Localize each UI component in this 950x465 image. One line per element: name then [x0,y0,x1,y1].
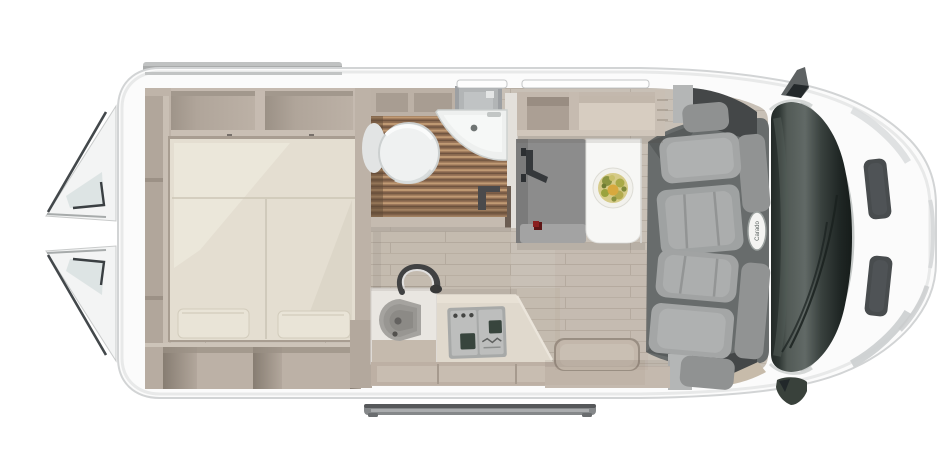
svg-text:Carado: Carado [755,221,761,241]
